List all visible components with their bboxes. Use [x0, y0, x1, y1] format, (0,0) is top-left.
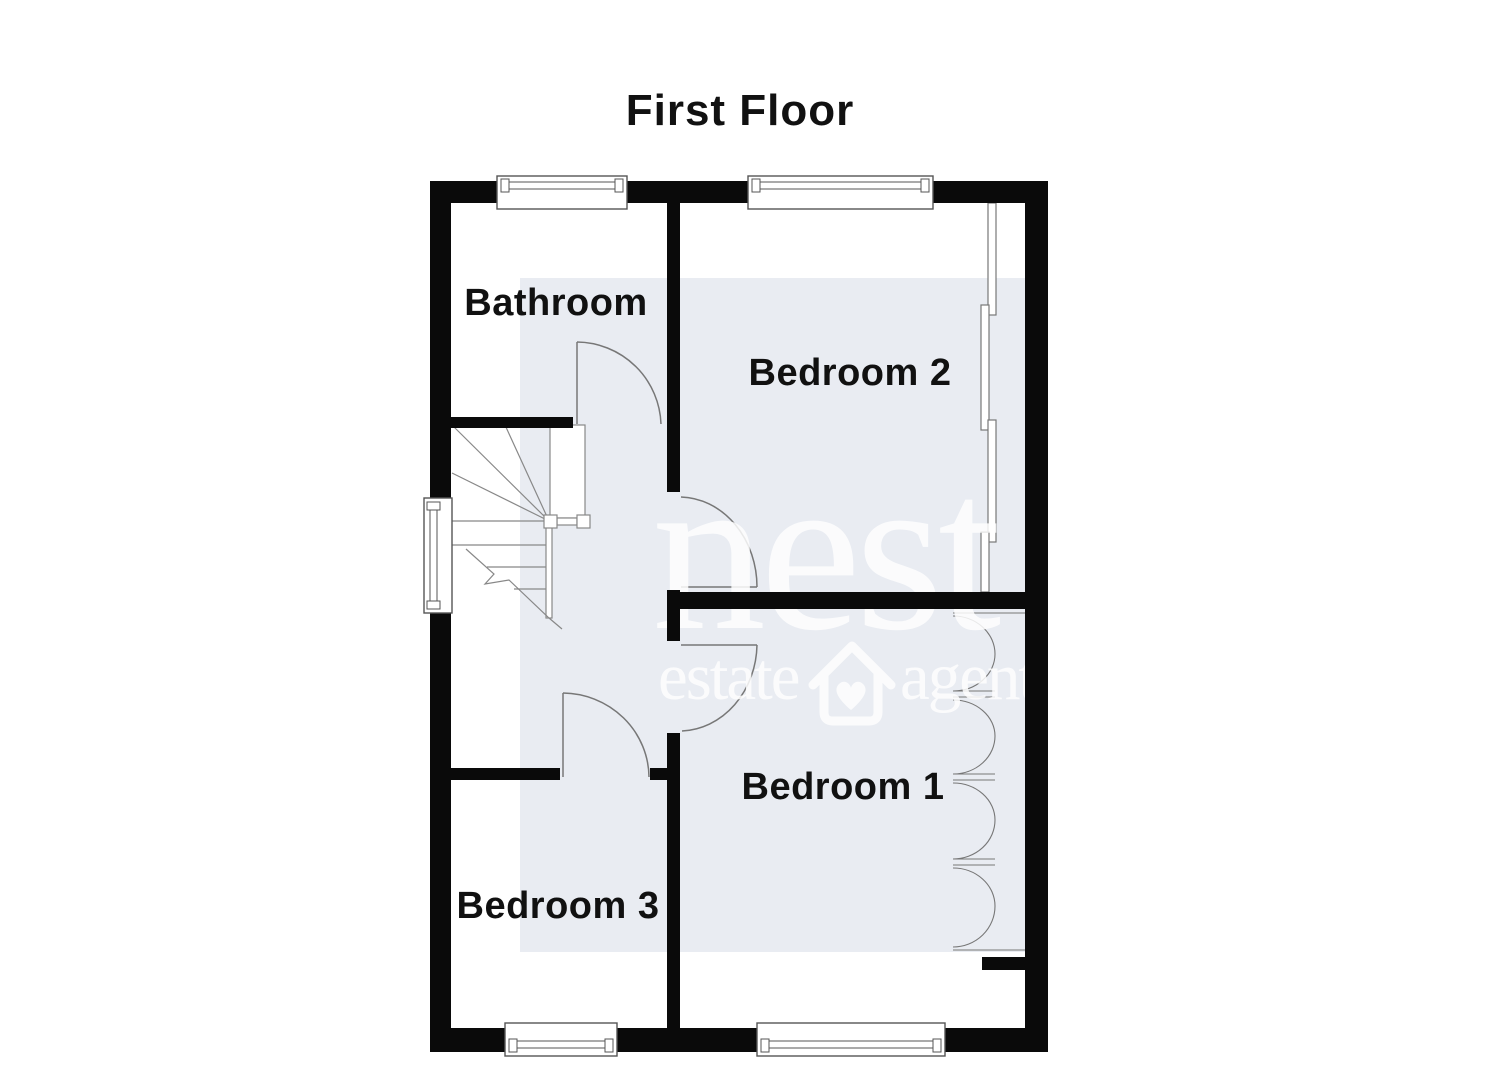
- watermark-word-estate: estate: [658, 640, 799, 714]
- room-label-bedroom1: Bedroom 1: [713, 767, 973, 807]
- wall-bedroom3-north-left: [451, 768, 560, 780]
- room-label-bedroom3: Bedroom 3: [428, 886, 688, 926]
- wall-bathroom-bedroom2: [667, 203, 680, 492]
- floorplan-drawing: nest estate agents: [0, 0, 1485, 1080]
- bathroom-window-icon: [497, 176, 627, 209]
- newel-post: [544, 515, 557, 528]
- wall-bedroom3-north-right: [650, 768, 680, 780]
- stairwell-window-icon: [424, 498, 452, 613]
- floorplan-canvas: First Floor: [0, 0, 1485, 1080]
- wall-right: [1025, 181, 1048, 1052]
- wall-wardrobe-stub: [982, 957, 1025, 970]
- wall-bathroom-south: [451, 417, 573, 428]
- bedroom1-window-icon: [757, 1023, 945, 1056]
- bedroom2-window-icon: [748, 176, 933, 209]
- room-label-bathroom: Bathroom: [430, 283, 682, 323]
- room-label-bedroom2: Bedroom 2: [720, 353, 980, 393]
- newel-post: [577, 515, 590, 528]
- wall-bedroom2-bedroom1: [667, 592, 1025, 609]
- bedroom3-window-icon: [505, 1023, 617, 1056]
